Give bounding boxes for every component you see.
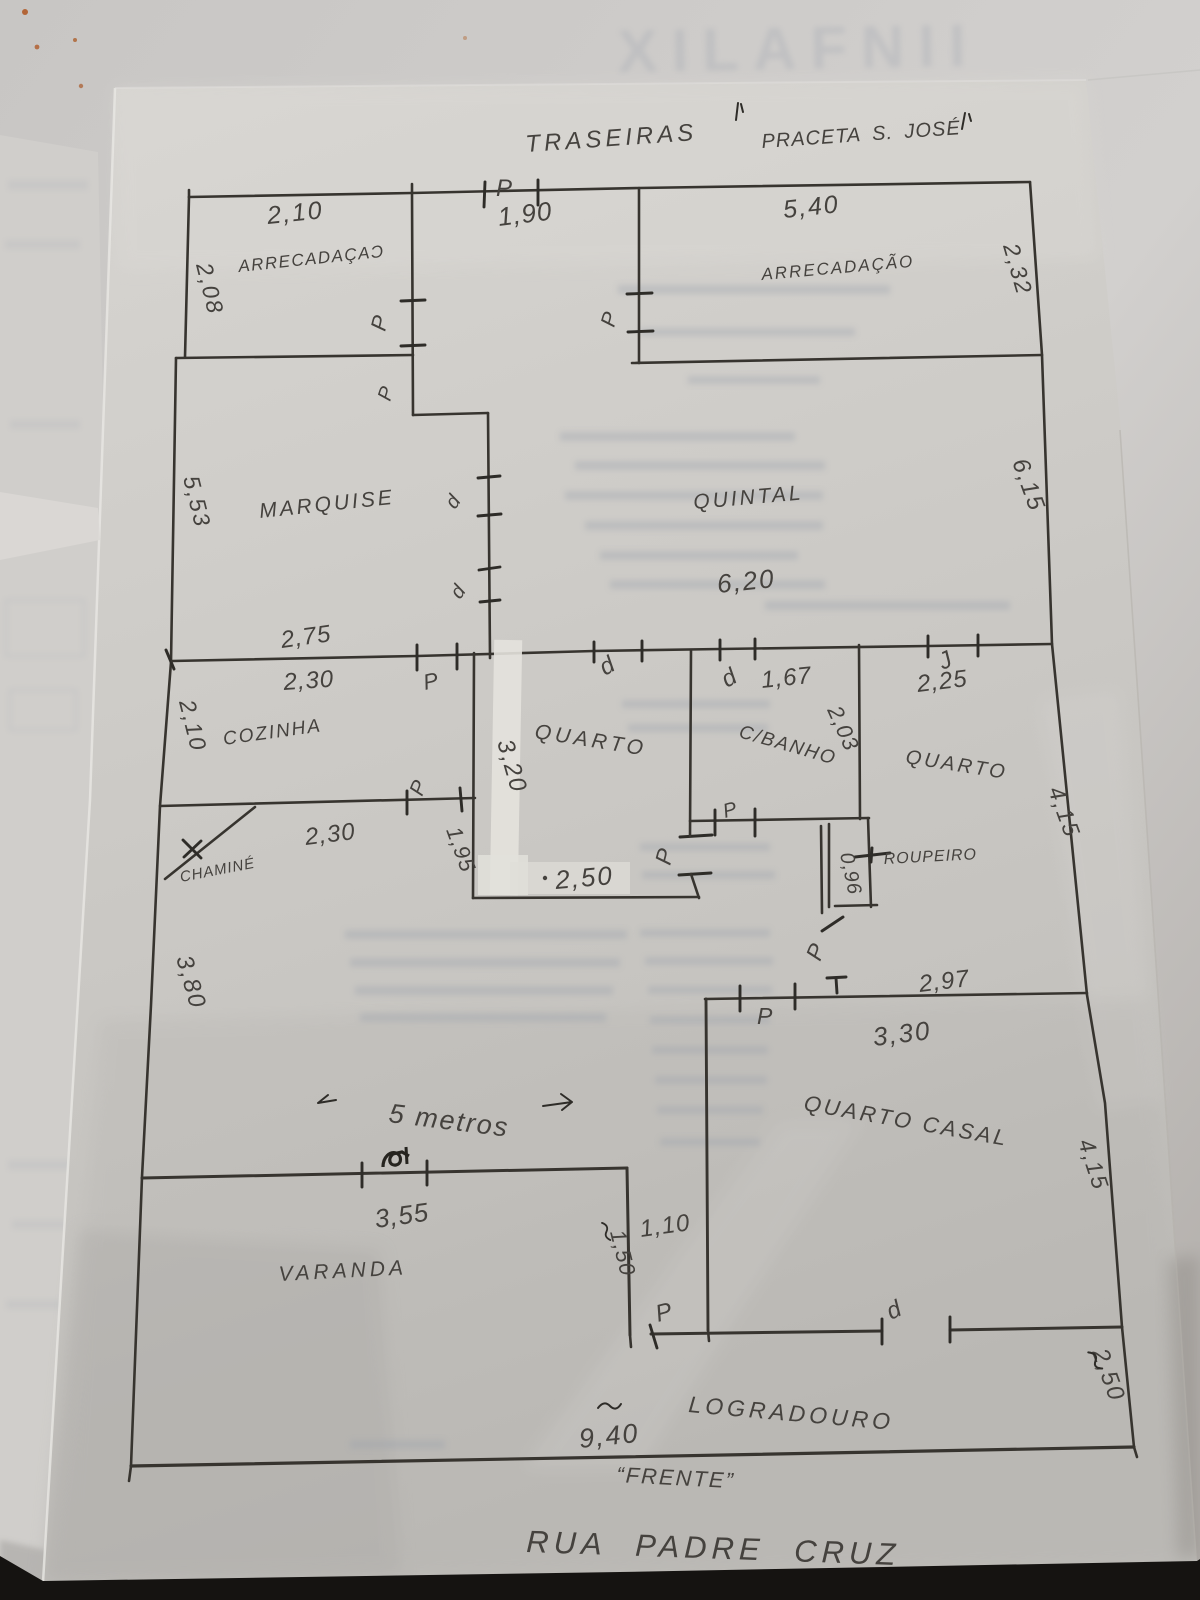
svg-text:2,50: 2,50: [553, 860, 615, 895]
svg-text:2,30: 2,30: [282, 666, 335, 697]
svg-text:9,40: 9,40: [577, 1418, 640, 1454]
svg-text:6,20: 6,20: [715, 563, 776, 599]
svg-text:2,10: 2,10: [265, 196, 325, 230]
svg-text:XILAFΝII: XILAFΝII: [617, 12, 980, 85]
svg-text:5,40: 5,40: [782, 190, 841, 224]
svg-text:P: P: [496, 175, 512, 202]
svg-text:P: P: [757, 1003, 773, 1029]
svg-text:1,67: 1,67: [760, 662, 814, 694]
